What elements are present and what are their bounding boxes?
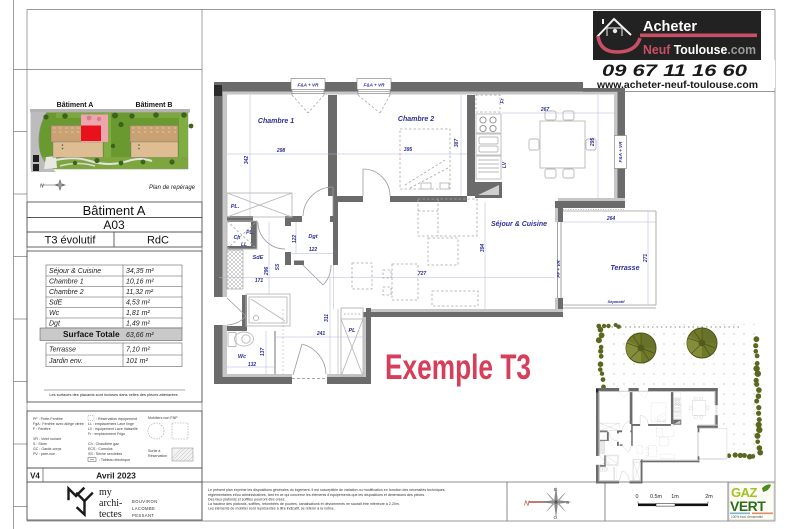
svg-text:1m: 1m [671,494,679,500]
svg-text:7,10 m²: 7,10 m² [126,347,150,354]
svg-text:264: 264 [606,216,616,222]
svg-text:394: 394 [480,244,486,253]
svg-text:N: N [40,184,44,190]
svg-text:T3 évolutif: T3 évolutif [45,235,97,247]
svg-text:311: 311 [324,314,330,322]
svg-text:VERT: VERT [730,498,766,514]
svg-text:LL: LL [241,242,247,248]
svg-text:Jardin env.: Jardin env. [48,358,83,365]
svg-text:0: 0 [636,494,639,500]
svg-text:www.acheter-neuf-toulouse.com: www.acheter-neuf-toulouse.com [596,79,758,91]
svg-text:11,32 m²: 11,32 m² [126,289,154,296]
svg-text:100% écol d'ensemble: 100% écol d'ensemble [731,515,763,519]
svg-text:PL.: PL. [246,230,254,236]
svg-text:Avril 2023: Avril 2023 [96,471,136,481]
svg-text:Wc: Wc [238,354,246,360]
svg-text:295: 295 [590,138,596,148]
svg-text:LL : emplacement Lave linge: LL : emplacement Lave linge [88,422,134,426]
svg-text:0.5m: 0.5m [650,494,662,500]
svg-text:archi-: archi- [99,498,122,509]
svg-text:S: S [566,500,569,505]
svg-text:E: E [554,487,557,492]
svg-text:N: N [524,499,530,508]
svg-text:Dgt: Dgt [49,321,61,328]
svg-text:PL: PL [348,328,356,334]
svg-text:V4: V4 [30,472,40,481]
svg-text:395: 395 [404,147,413,153]
svg-text:122: 122 [309,247,318,253]
svg-text:Chambre 1: Chambre 1 [49,279,84,286]
svg-text:271: 271 [643,254,649,264]
svg-text:34,35 m²: 34,35 m² [126,268,154,275]
svg-text:O: O [554,515,558,520]
svg-text:Ch: Ch [234,235,241,241]
svg-text:Fr : emplacement Frigo: Fr : emplacement Frigo [88,432,125,436]
svg-text:2m: 2m [705,494,713,500]
svg-text:PV : pare-vue: PV : pare-vue [33,452,55,456]
svg-text:Bâtiment A: Bâtiment A [57,102,94,109]
svg-text:Les surfaces des placards sont: Les surfaces des placards sont incluses … [49,392,178,397]
svg-text:PESSANT: PESSANT [132,513,154,518]
svg-text:GC : Garde-corps: GC : Garde-corps [33,447,62,451]
svg-text:my: my [99,487,112,498]
svg-text:Réservation: Réservation [148,454,167,458]
svg-text:137: 137 [260,348,266,357]
svg-text:1,49 m²: 1,49 m² [126,321,150,328]
svg-text:Des faux plafonds et soffites: Des faux plafonds et soffites pourront ê… [208,498,285,502]
svg-text:241: 241 [316,331,326,337]
svg-text:F&A + VR: F&A + VR [364,83,386,88]
svg-text:298: 298 [276,148,286,154]
svg-text:296: 296 [264,267,270,277]
svg-text:Bâtiment A: Bâtiment A [83,203,146,218]
svg-text:Séjour & Cuisine: Séjour & Cuisine [491,221,547,228]
svg-text:Ch : Chaudière gaz: Ch : Chaudière gaz [88,442,119,446]
svg-text:132: 132 [248,362,257,368]
svg-text:Chambre 2: Chambre 2 [398,116,434,123]
svg-text:Plan de repérage: Plan de repérage [149,185,196,191]
svg-text:tectes: tectes [99,509,122,520]
svg-text:Dgt: Dgt [308,234,318,240]
svg-text:A03: A03 [103,218,125,232]
svg-text:Séjour & Cuisine: Séjour & Cuisine [49,268,101,275]
svg-text:SdE: SdE [253,255,264,261]
svg-text:LV: LV [502,161,508,168]
svg-text:63,66 m²: 63,66 m² [126,332,154,339]
svg-text:réglementaires et/ou administr: réglementaires et/ou administratives, ta… [208,493,425,497]
svg-text:LV : équipement Lave Vaisselle: LV : équipement Lave Vaisselle [88,427,138,431]
svg-text:Les éléments de mobilier sont: Les éléments de mobilier sont représenté… [208,507,335,511]
svg-text:SS: SS [275,263,281,270]
svg-text:PL.: PL. [231,204,240,210]
svg-text:BOUVIRON: BOUVIRON [132,499,158,504]
svg-text:Chambre 2: Chambre 2 [49,289,84,296]
svg-text:RdC: RdC [147,235,169,247]
svg-text:267: 267 [540,107,550,113]
svg-text:10,16 m²: 10,16 m² [126,279,154,286]
svg-text:4,53 m²: 4,53 m² [126,300,150,307]
svg-text:Chambre 1: Chambre 1 [258,118,294,125]
svg-text:101 m²: 101 m² [126,358,148,365]
svg-text:La hauteur des plafonds, soffi: La hauteur des plafonds, soffites, retom… [208,502,400,506]
svg-text:Exemple T3: Exemple T3 [385,348,531,387]
svg-text:Terrasse: Terrasse [49,347,76,354]
svg-text:1,81 m²: 1,81 m² [126,310,150,317]
svg-text:727: 727 [418,271,427,277]
svg-text:Séparatif: Séparatif [607,299,625,304]
svg-text:SdE: SdE [49,300,63,307]
svg-text:VR : Volet roulant: VR : Volet roulant [33,437,61,441]
svg-text:Acheter: Acheter [643,19,697,35]
svg-text:Le présent plan exprime les di: Le présent plan exprime les dispositions… [208,488,446,492]
svg-text:PF + VR: PF + VR [556,260,561,278]
svg-text:: Réservation équipement: : Réservation équipement [96,417,137,421]
svg-text:Neuf Toulouse.com: Neuf Toulouse.com [643,42,756,57]
svg-text:F : Fenêtre: F : Fenêtre [33,427,51,431]
svg-text:Surface Totale: Surface Totale [63,329,120,339]
svg-text:Mobiliers non FNP: Mobiliers non FNP [148,416,178,420]
svg-text:F&A + VR: F&A + VR [298,83,320,88]
svg-text:387: 387 [454,139,460,148]
svg-text:S : Store: S : Store [33,442,47,446]
svg-text:PF : Porte-Fenêtre: PF : Porte-Fenêtre [33,417,63,421]
svg-text:SS : Sèche serviettes: SS : Sèche serviettes [88,452,123,456]
svg-text:171: 171 [255,278,264,284]
svg-text:09 67 11 16 60: 09 67 11 16 60 [602,61,748,80]
svg-text:Wc: Wc [49,310,60,317]
svg-text:FgA : Fenêtre avec allège vitr: FgA : Fenêtre avec allège vitrée [33,422,84,426]
svg-text:: Tableau électrique: : Tableau électrique [99,458,130,462]
svg-text:122: 122 [292,235,298,244]
svg-text:Terrasse: Terrasse [611,265,640,272]
svg-text:Bâtiment B: Bâtiment B [136,102,173,109]
svg-text:342: 342 [244,156,250,165]
svg-text:F&A + VR: F&A + VR [618,141,623,163]
svg-text:Sortie à: Sortie à [148,449,160,453]
svg-text:LACOMBE: LACOMBE [132,506,155,511]
svg-text:ECS : Cumulus: ECS : Cumulus [88,447,113,451]
